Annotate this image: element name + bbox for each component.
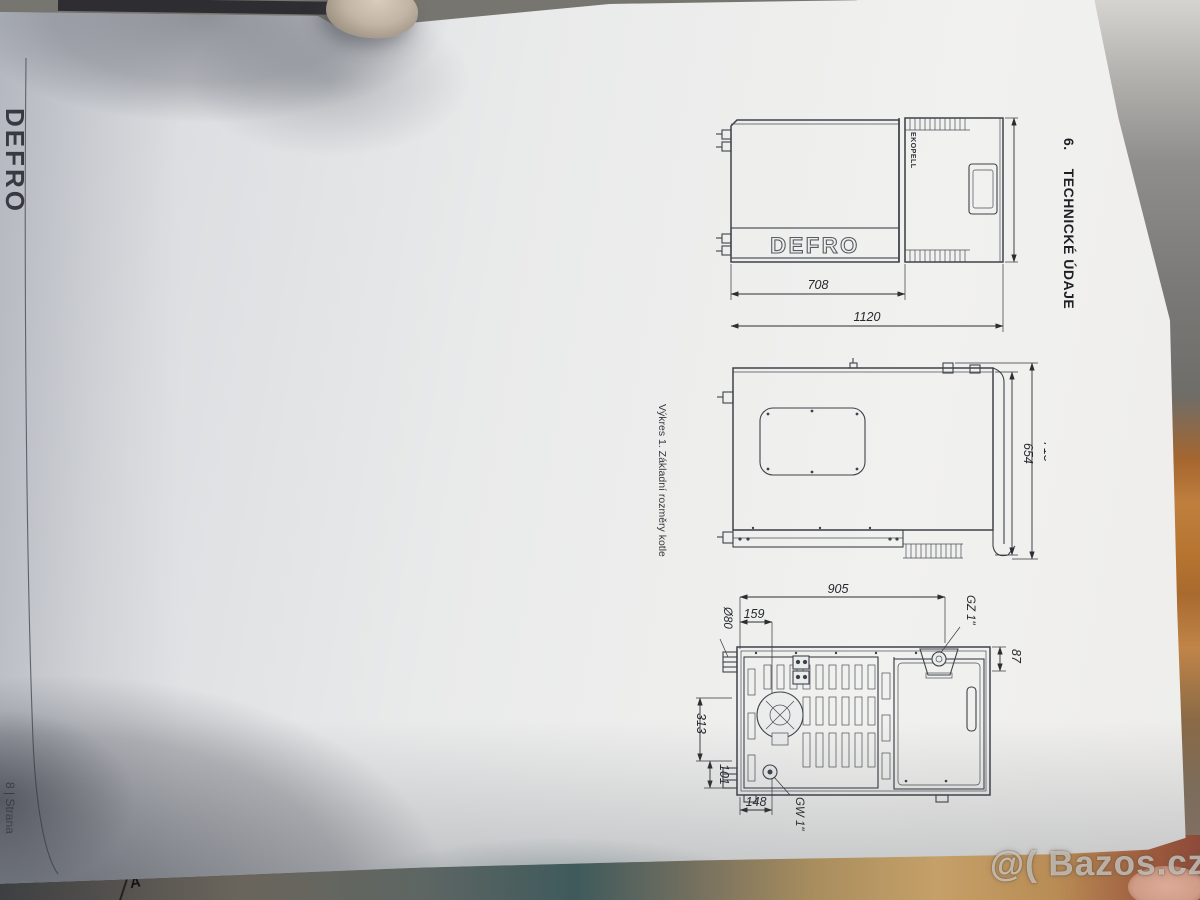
terminal-boxes (793, 656, 809, 684)
label-gz-fitting: GZ 1" (964, 595, 976, 626)
dim-1120: 1120 (854, 310, 881, 324)
dim-715: 715 (1041, 441, 1046, 462)
dimensions-side: 708 1120 525 (731, 118, 1026, 332)
dim-654: 654 (1021, 443, 1035, 464)
dim-708: 708 (808, 278, 829, 292)
figure-caption: Výkres 1. Základní rozměry kotle (652, 404, 672, 564)
heading-title: TECHNICKÉ ÚDAJE (1061, 169, 1077, 310)
dim-525: 525 (1023, 176, 1026, 197)
top-ribs (905, 118, 970, 130)
top-hatch (760, 408, 865, 475)
boiler-body-top (717, 358, 1015, 558)
boiler-body-side: DEFRO (716, 118, 1003, 262)
flue-stub (723, 652, 737, 672)
dim-101: 101 (717, 764, 731, 785)
drawing-rear-view: 905 159 Ø80 GZ 1" 87 (686, 581, 1024, 833)
bottom-ribs (905, 250, 970, 262)
fan (757, 692, 803, 745)
heading-number: 6. (1061, 138, 1077, 151)
model-label: EKOPELL (909, 132, 916, 169)
table-shadow-top-strip (58, 0, 358, 15)
footer-rule-line (0, 40, 80, 890)
section-heading: 6.TECHNICKÉ ÚDAJE (1054, 138, 1084, 298)
label-gw-fitting: GW 1" (793, 797, 805, 831)
dim-159: 159 (744, 607, 765, 621)
dim-148: 148 (746, 795, 767, 809)
manual-page: DEFRO 6.TECHNICKÉ ÚDAJE Výkres 1. Základ… (0, 0, 1200, 900)
bottom-ribs (903, 544, 963, 558)
middle-column (878, 657, 894, 788)
dim-flue-diameter: Ø80 (721, 606, 733, 629)
hinges (717, 392, 733, 543)
rear-door (894, 659, 984, 789)
drawing-top-view: 654 715 (710, 348, 1046, 584)
dim-905: 905 (828, 582, 849, 596)
gz-fitting (920, 649, 958, 678)
drawing-side-view: DEFRO (714, 104, 1026, 336)
bottom-rail (733, 527, 903, 547)
photo-of-manual-page: A DEFRO 6.TECHNICKÉ ÚDAJE Výkres 1. Zákl… (0, 0, 1200, 900)
dim-87: 87 (1009, 649, 1023, 664)
hinges (716, 130, 731, 255)
dimensions-rear-top: 905 159 Ø80 GZ 1" 87 (720, 582, 1023, 701)
vent-panel (744, 657, 878, 795)
figure-caption-text: Výkres 1. Základní rozměry kotle (652, 404, 672, 557)
brand-plate-text: DEFRO (770, 233, 860, 258)
watermark: @( Bazos.cz (990, 843, 1200, 900)
dim-313: 313 (694, 713, 708, 734)
side-contour (993, 368, 1004, 544)
